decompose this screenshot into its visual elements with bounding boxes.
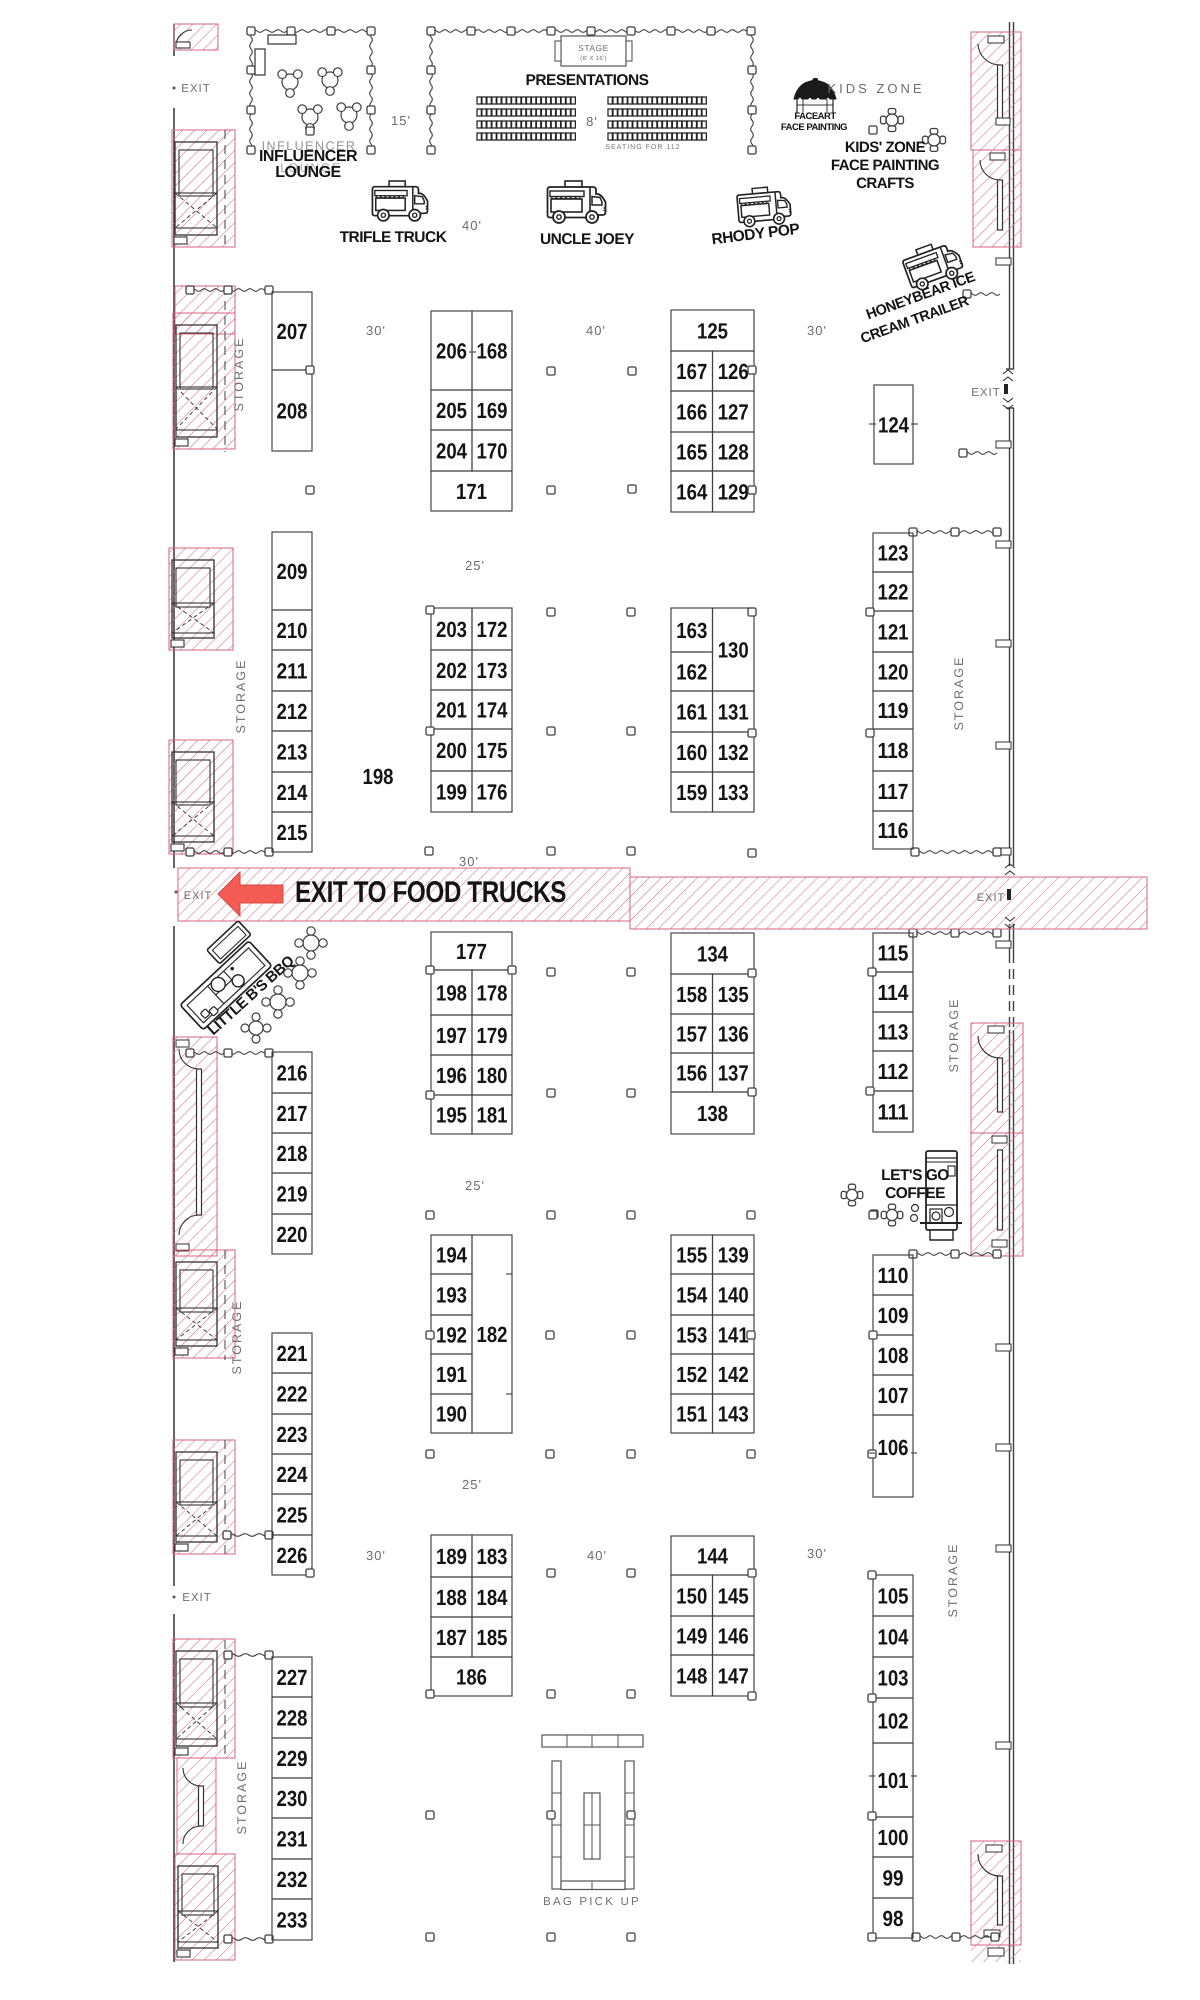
svg-text:132: 132 (718, 740, 749, 765)
svg-text:171: 171 (456, 479, 487, 504)
svg-text:184: 184 (477, 1585, 509, 1610)
svg-text:BAG PICK UP: BAG PICK UP (543, 1896, 641, 1908)
svg-text:SEATING FOR 112: SEATING FOR 112 (605, 144, 680, 151)
svg-text:198: 198 (436, 980, 467, 1005)
svg-text:151: 151 (676, 1401, 707, 1426)
svg-text:186: 186 (456, 1664, 487, 1689)
svg-text:119: 119 (878, 698, 909, 723)
svg-text:KIDS' ZONE: KIDS' ZONE (845, 139, 926, 156)
svg-text:100: 100 (878, 1825, 909, 1850)
svg-text:PRESENTATIONS: PRESENTATIONS (526, 72, 649, 89)
svg-text:120: 120 (878, 659, 909, 684)
svg-text:STORAGE: STORAGE (946, 1543, 960, 1618)
svg-text:105: 105 (878, 1583, 909, 1608)
svg-text:123: 123 (878, 540, 909, 565)
svg-text:223: 223 (277, 1422, 308, 1447)
svg-text:112: 112 (878, 1059, 909, 1084)
svg-text:102: 102 (878, 1708, 909, 1733)
svg-text:106: 106 (878, 1435, 909, 1460)
svg-text:128: 128 (718, 439, 749, 464)
svg-text:228: 228 (277, 1705, 308, 1730)
svg-text:174: 174 (477, 697, 509, 722)
svg-text:STORAGE: STORAGE (235, 1760, 249, 1835)
svg-text:40': 40' (587, 1548, 607, 1563)
svg-text:FACEART: FACEART (794, 111, 836, 122)
svg-text:25': 25' (462, 1477, 482, 1492)
svg-text:25': 25' (465, 1178, 485, 1193)
svg-text:182: 182 (477, 1322, 508, 1347)
svg-text:152: 152 (676, 1362, 707, 1387)
svg-text:168: 168 (477, 338, 508, 363)
svg-text:159: 159 (676, 780, 707, 805)
svg-text:212: 212 (277, 699, 308, 724)
svg-text:205: 205 (436, 398, 467, 423)
svg-text:155: 155 (676, 1242, 707, 1267)
svg-text:154: 154 (676, 1282, 708, 1307)
svg-text:127: 127 (718, 399, 749, 424)
svg-text:STAGE: STAGE (578, 43, 609, 53)
svg-text:169: 169 (477, 398, 508, 423)
svg-text:109: 109 (878, 1303, 909, 1328)
svg-text:110: 110 (878, 1263, 909, 1288)
svg-text:137: 137 (718, 1060, 749, 1085)
svg-text:107: 107 (878, 1383, 909, 1408)
svg-text:124: 124 (878, 412, 910, 437)
svg-text:183: 183 (477, 1544, 508, 1569)
svg-text:116: 116 (878, 818, 909, 843)
svg-text:214: 214 (277, 780, 309, 805)
svg-text:150: 150 (676, 1583, 707, 1608)
svg-text:191: 191 (436, 1362, 467, 1387)
svg-text:121: 121 (878, 619, 909, 644)
svg-text:114: 114 (878, 980, 910, 1005)
svg-text:194: 194 (436, 1242, 468, 1267)
svg-text:207: 207 (277, 319, 308, 344)
svg-text:200: 200 (436, 738, 467, 763)
svg-text:177: 177 (456, 939, 487, 964)
svg-text:226: 226 (277, 1543, 308, 1568)
svg-text:FACE PAINTING: FACE PAINTING (781, 122, 847, 133)
svg-text:30': 30' (366, 323, 386, 338)
svg-text:125: 125 (697, 318, 728, 343)
svg-text:EXIT: EXIT (182, 1592, 212, 1604)
svg-text:144: 144 (697, 1543, 729, 1568)
svg-text:185: 185 (477, 1625, 508, 1650)
svg-text:173: 173 (477, 658, 508, 683)
svg-text:138: 138 (697, 1101, 728, 1126)
svg-text:221: 221 (277, 1341, 308, 1366)
svg-text:216: 216 (277, 1060, 308, 1085)
svg-text:99: 99 (883, 1865, 904, 1890)
svg-text:189: 189 (436, 1544, 467, 1569)
svg-text:196: 196 (436, 1063, 467, 1088)
svg-text:INFLUENCER: INFLUENCER (259, 148, 358, 165)
svg-text:204: 204 (436, 438, 468, 463)
svg-text:153: 153 (676, 1322, 707, 1347)
svg-text:165: 165 (676, 439, 707, 464)
svg-text:30': 30' (807, 323, 827, 338)
svg-text:190: 190 (436, 1401, 467, 1426)
svg-text:229: 229 (277, 1746, 308, 1771)
svg-text:148: 148 (676, 1663, 707, 1688)
svg-text:140: 140 (718, 1282, 749, 1307)
svg-text:198: 198 (363, 764, 394, 789)
svg-text:217: 217 (277, 1101, 308, 1126)
svg-text:166: 166 (676, 399, 707, 424)
svg-text:193: 193 (436, 1282, 467, 1307)
svg-text:206: 206 (436, 338, 467, 363)
svg-text:30': 30' (807, 1546, 827, 1561)
svg-text:139: 139 (718, 1242, 749, 1267)
svg-text:EXIT: EXIT (184, 890, 212, 902)
svg-text:178: 178 (477, 980, 508, 1005)
svg-text:145: 145 (718, 1583, 749, 1608)
svg-text:199: 199 (436, 779, 467, 804)
svg-text:232: 232 (277, 1867, 308, 1892)
svg-text:122: 122 (878, 579, 909, 604)
svg-text:25': 25' (465, 558, 485, 573)
svg-text:30': 30' (366, 1548, 386, 1563)
svg-text:130: 130 (718, 637, 749, 662)
svg-text:208: 208 (277, 398, 308, 423)
svg-text:STORAGE: STORAGE (952, 656, 966, 731)
svg-text:EXIT: EXIT (971, 387, 1001, 399)
svg-text:136: 136 (718, 1021, 749, 1046)
svg-text:TRIFLE TRUCK: TRIFLE TRUCK (340, 229, 448, 246)
svg-text:161: 161 (676, 699, 707, 724)
svg-text:115: 115 (878, 940, 909, 965)
svg-text:225: 225 (277, 1502, 308, 1527)
svg-text:192: 192 (436, 1322, 467, 1347)
svg-text:101: 101 (878, 1768, 909, 1793)
svg-text:104: 104 (878, 1624, 910, 1649)
svg-text:227: 227 (277, 1665, 308, 1690)
svg-text:111: 111 (878, 1099, 909, 1124)
svg-text:103: 103 (878, 1665, 909, 1690)
svg-text:STORAGE: STORAGE (232, 337, 246, 412)
svg-text:157: 157 (676, 1021, 707, 1046)
svg-text:201: 201 (436, 697, 467, 722)
svg-text:108: 108 (878, 1343, 909, 1368)
svg-text:162: 162 (676, 659, 707, 684)
svg-text:181: 181 (477, 1102, 508, 1127)
svg-text:210: 210 (277, 618, 308, 643)
svg-text:98: 98 (883, 1906, 904, 1931)
svg-text:133: 133 (718, 780, 749, 805)
svg-text:146: 146 (718, 1623, 749, 1648)
svg-text:EXIT: EXIT (181, 83, 211, 95)
svg-text:STORAGE: STORAGE (947, 998, 961, 1073)
svg-text:UNCLE JOEY: UNCLE JOEY (540, 231, 635, 248)
svg-text:209: 209 (277, 559, 308, 584)
svg-text:135: 135 (718, 982, 749, 1007)
svg-text:203: 203 (436, 617, 467, 642)
svg-text:213: 213 (277, 739, 308, 764)
svg-text:131: 131 (718, 699, 749, 724)
svg-text:149: 149 (676, 1623, 707, 1648)
svg-text:231: 231 (277, 1826, 308, 1851)
svg-text:LET'S GO: LET'S GO (881, 1167, 949, 1184)
svg-text:197: 197 (436, 1023, 467, 1048)
svg-text:202: 202 (436, 658, 467, 683)
svg-text:222: 222 (277, 1381, 308, 1406)
svg-text:187: 187 (436, 1625, 467, 1650)
svg-text:156: 156 (676, 1060, 707, 1085)
svg-text:143: 143 (718, 1401, 749, 1426)
svg-text:CRAFTS: CRAFTS (856, 175, 914, 192)
svg-text:160: 160 (676, 740, 707, 765)
svg-text:211: 211 (277, 658, 308, 683)
svg-text:KIDS ZONE: KIDS ZONE (827, 81, 924, 96)
svg-text:233: 233 (277, 1907, 308, 1932)
svg-text:118: 118 (878, 738, 909, 763)
svg-text:176: 176 (477, 779, 508, 804)
svg-text:220: 220 (277, 1222, 308, 1247)
svg-text:172: 172 (477, 617, 508, 642)
svg-text:STORAGE: STORAGE (234, 659, 248, 734)
svg-text:EXIT: EXIT (977, 892, 1005, 904)
svg-text:170: 170 (477, 438, 508, 463)
svg-text:30': 30' (459, 854, 479, 869)
svg-text:15': 15' (391, 113, 411, 128)
svg-text:180: 180 (477, 1063, 508, 1088)
svg-text:141: 141 (718, 1322, 749, 1347)
svg-text:129: 129 (718, 479, 749, 504)
svg-text:40': 40' (586, 323, 606, 338)
svg-text:113: 113 (878, 1019, 909, 1044)
svg-text:LOUNGE: LOUNGE (275, 164, 341, 181)
svg-text:(8' X 16'): (8' X 16') (580, 55, 607, 62)
svg-text:40': 40' (462, 218, 482, 233)
svg-text:STORAGE: STORAGE (230, 1300, 244, 1375)
svg-text:175: 175 (477, 738, 508, 763)
svg-text:COFFEE: COFFEE (885, 1185, 945, 1202)
svg-text:167: 167 (676, 359, 707, 384)
svg-text:117: 117 (878, 779, 909, 804)
svg-text:158: 158 (676, 982, 707, 1007)
svg-text:142: 142 (718, 1362, 749, 1387)
svg-text:FACE PAINTING: FACE PAINTING (831, 157, 939, 174)
svg-text:218: 218 (277, 1141, 308, 1166)
svg-text:164: 164 (676, 479, 708, 504)
svg-text:179: 179 (477, 1023, 508, 1048)
svg-text:126: 126 (718, 359, 749, 384)
svg-text:215: 215 (277, 820, 308, 845)
svg-text:230: 230 (277, 1786, 308, 1811)
svg-text:188: 188 (436, 1585, 467, 1610)
svg-text:224: 224 (277, 1462, 309, 1487)
svg-text:EXIT TO FOOD TRUCKS: EXIT TO FOOD TRUCKS (295, 876, 566, 909)
svg-text:147: 147 (718, 1663, 749, 1688)
svg-text:163: 163 (676, 618, 707, 643)
svg-text:134: 134 (697, 941, 729, 966)
svg-text:219: 219 (277, 1181, 308, 1206)
svg-text:195: 195 (436, 1102, 467, 1127)
svg-text:8': 8' (586, 114, 598, 129)
